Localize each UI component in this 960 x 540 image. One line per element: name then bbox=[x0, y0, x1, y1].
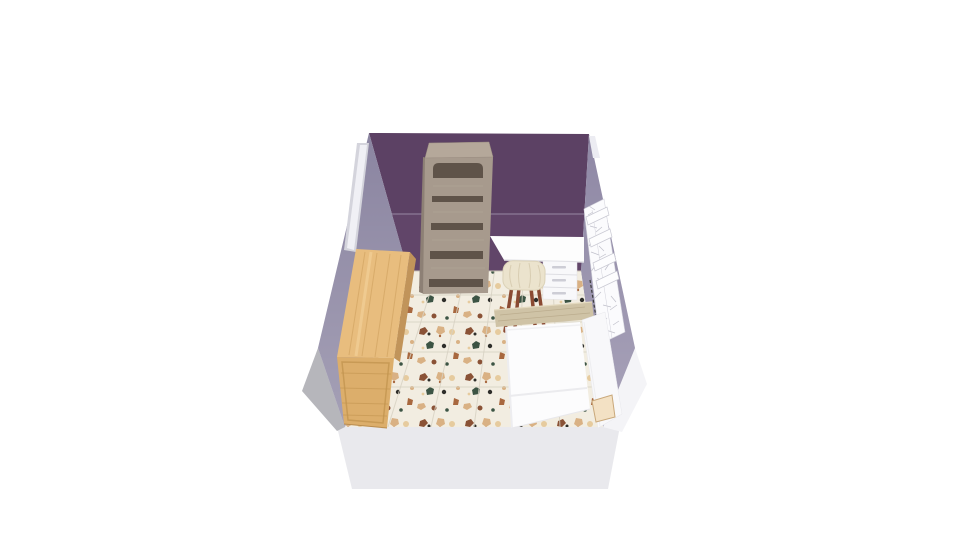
drawer-handle[interactable] bbox=[552, 266, 566, 269]
bookshelf-opening bbox=[429, 279, 483, 287]
drawer-handle[interactable] bbox=[552, 279, 566, 282]
desk-top bbox=[490, 236, 584, 262]
bed[interactable] bbox=[494, 302, 622, 428]
bookshelf-opening bbox=[432, 196, 483, 202]
bookshelf-opening bbox=[431, 223, 483, 230]
bookshelf-opening bbox=[430, 251, 483, 259]
drawer-handle[interactable] bbox=[552, 292, 566, 295]
bookshelf-opening-arch bbox=[433, 163, 483, 178]
bookshelf[interactable] bbox=[419, 142, 493, 294]
planner-canvas[interactable] bbox=[0, 0, 960, 540]
room-3d-view[interactable] bbox=[0, 0, 960, 540]
